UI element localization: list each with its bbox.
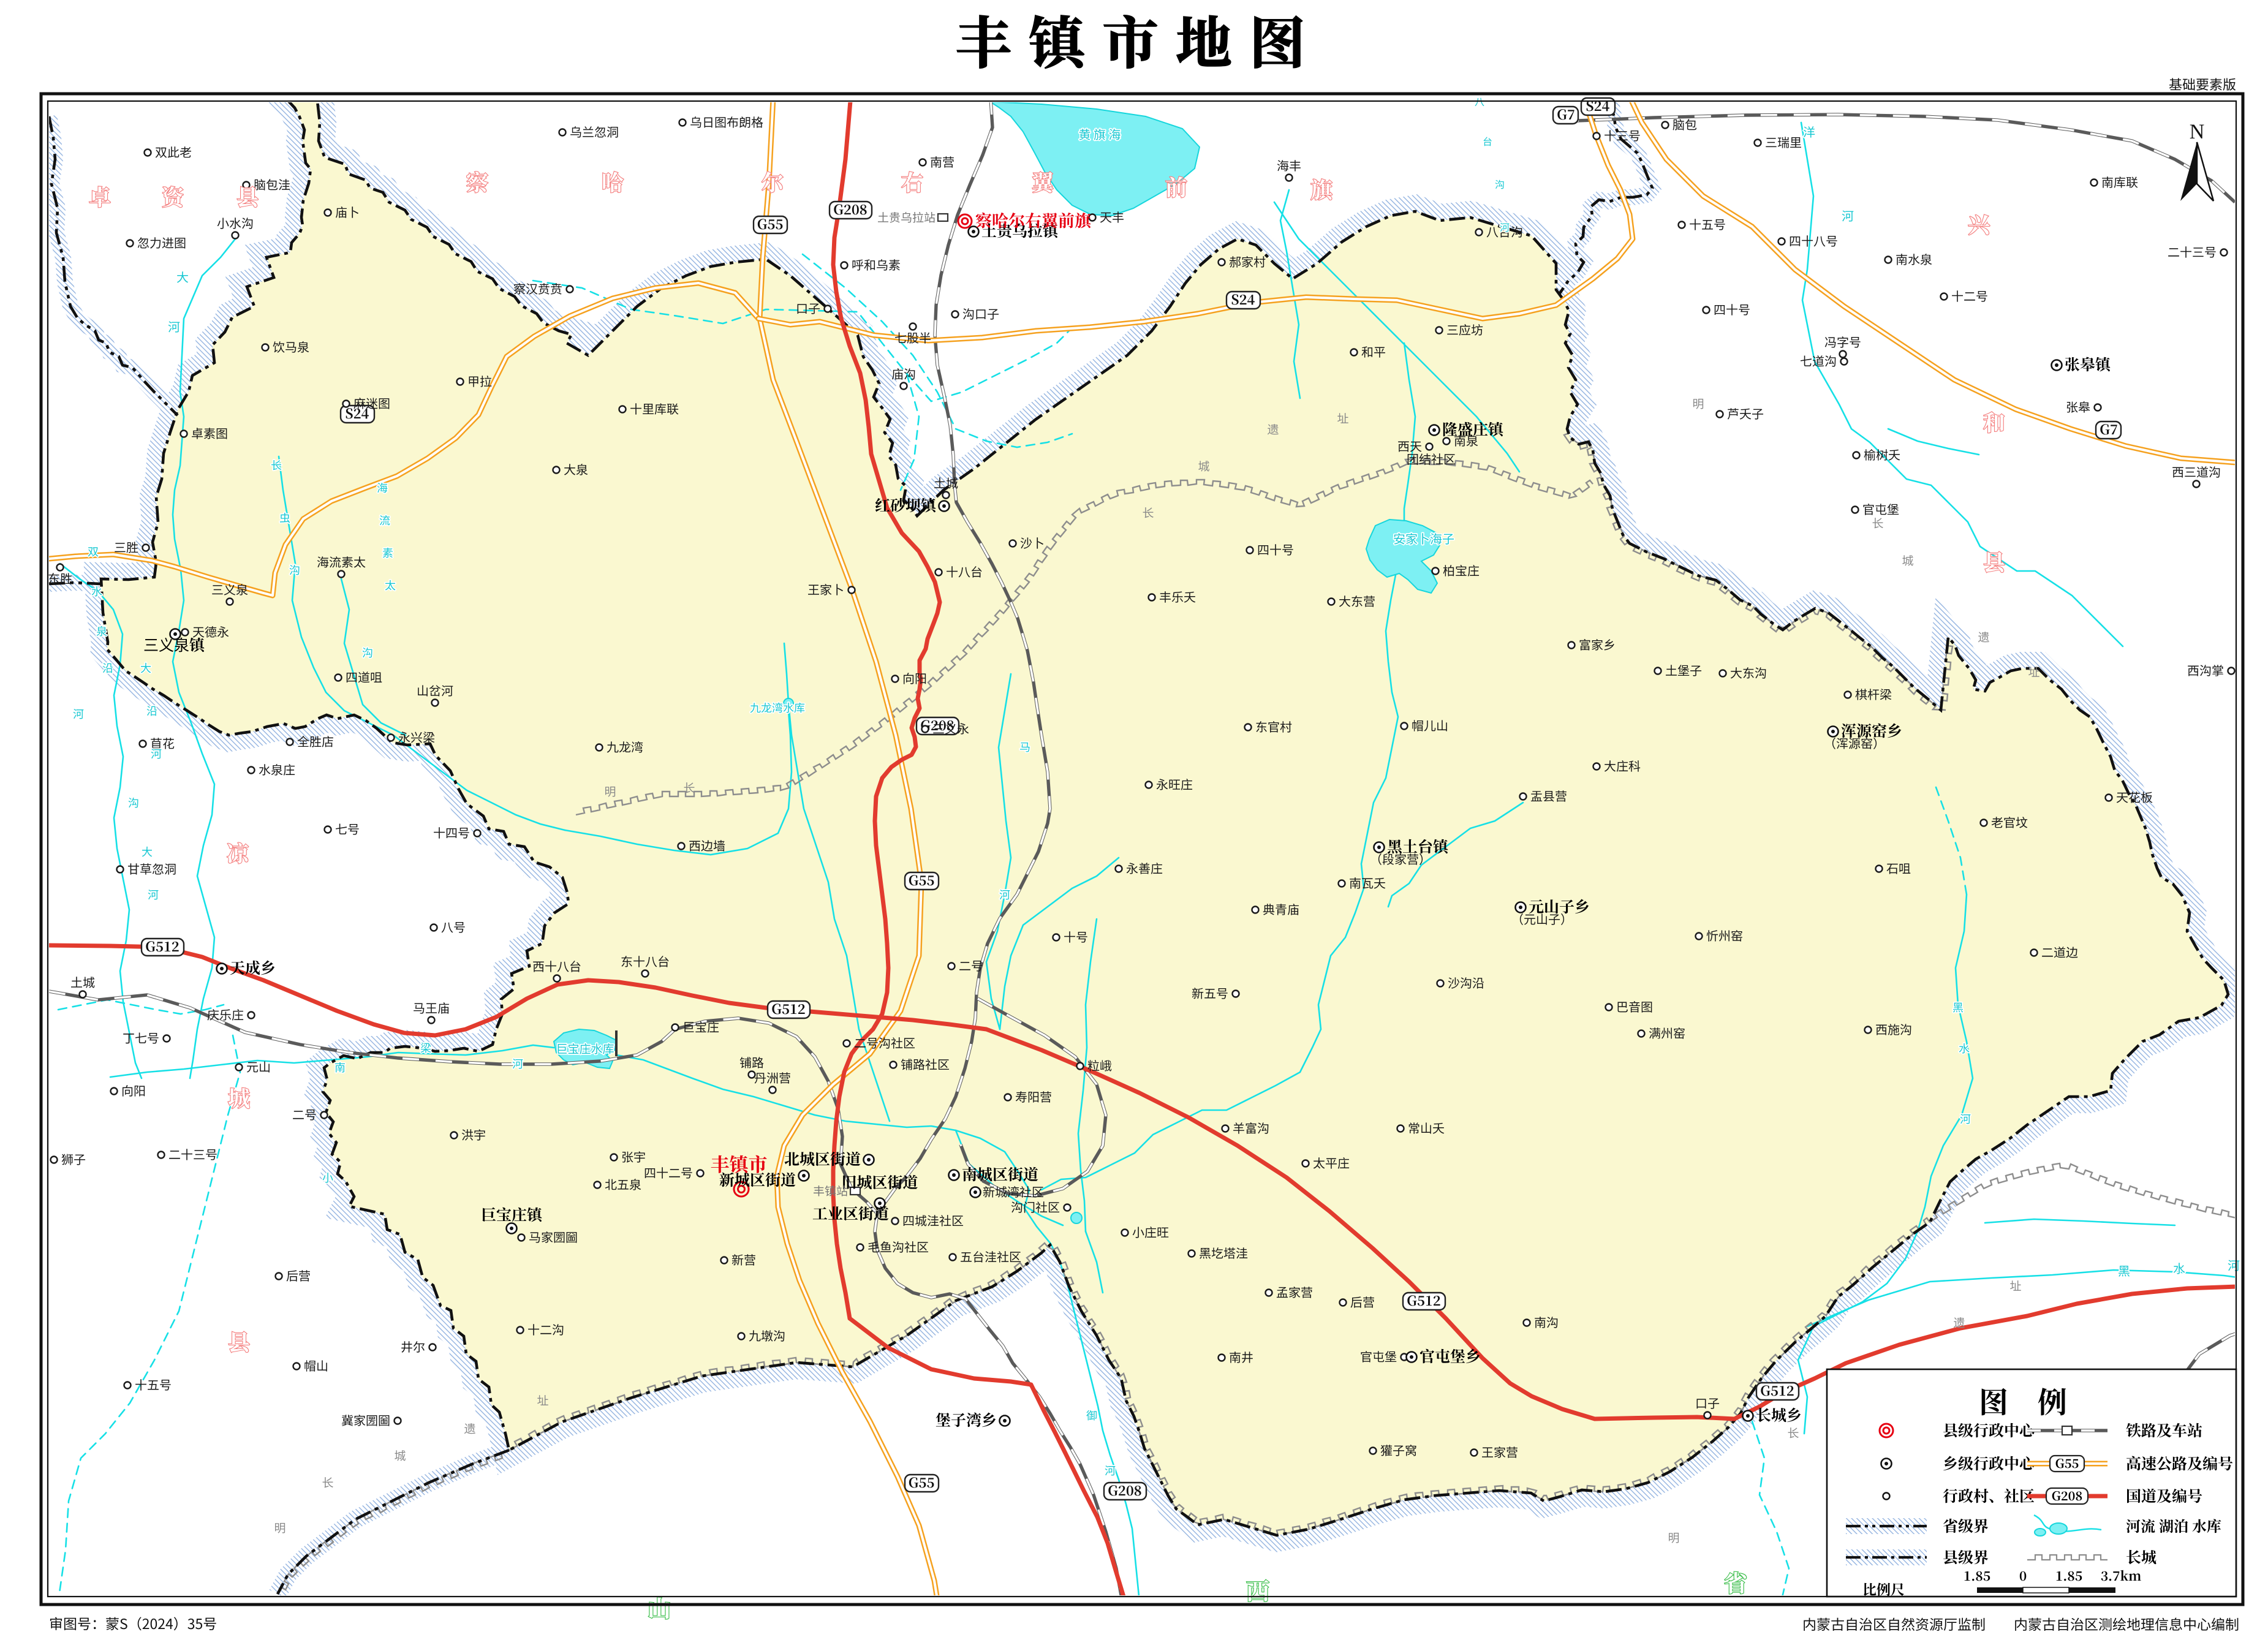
svg-text:全胜店: 全胜店 <box>297 732 334 750</box>
svg-text:二号: 二号 <box>959 956 983 974</box>
svg-text:铁路及车站: 铁路及车站 <box>2126 1419 2202 1441</box>
svg-text:高速公路及编号: 高速公路及编号 <box>2126 1452 2233 1474</box>
svg-text:前: 前 <box>1165 171 1187 202</box>
svg-text:冀家圐圙: 冀家圐圙 <box>341 1411 390 1429</box>
svg-text:卓: 卓 <box>89 181 111 212</box>
svg-text:三义永: 三义永 <box>932 719 969 737</box>
svg-text:山: 山 <box>648 1590 671 1624</box>
svg-text:海流素太: 海流素太 <box>317 553 366 570</box>
svg-text:和平: 和平 <box>1361 342 1386 360</box>
svg-text:流: 流 <box>379 512 390 528</box>
svg-text:S24: S24 <box>1231 290 1255 309</box>
svg-text:明: 明 <box>1668 1529 1679 1546</box>
svg-text:四十八号: 四十八号 <box>1789 232 1838 249</box>
svg-text:3.7km: 3.7km <box>2101 1567 2142 1585</box>
svg-text:G55: G55 <box>757 214 784 233</box>
svg-text:沙沟沿: 沙沟沿 <box>1448 974 1484 991</box>
svg-text:翼: 翼 <box>1032 166 1056 197</box>
svg-text:G55: G55 <box>909 1473 935 1492</box>
svg-text:明: 明 <box>1692 395 1704 412</box>
svg-text:黑: 黑 <box>2118 1261 2130 1279</box>
svg-text:小庄旺: 小庄旺 <box>1132 1223 1169 1241</box>
svg-text:三应坊: 三应坊 <box>1446 320 1483 338</box>
svg-text:十五号: 十五号 <box>135 1375 172 1393</box>
svg-text:忽力进图: 忽力进图 <box>137 233 186 251</box>
svg-text:盂县营: 盂县营 <box>1530 787 1567 804</box>
svg-text:帽儿山: 帽儿山 <box>1412 716 1448 734</box>
svg-text:长: 长 <box>271 457 282 473</box>
svg-text:榆树夭: 榆树夭 <box>1864 445 1900 463</box>
svg-text:遗: 遗 <box>1953 1314 1965 1331</box>
svg-text:十四号: 十四号 <box>433 823 470 841</box>
svg-text:马: 马 <box>1019 739 1030 755</box>
svg-text:巨宝庄: 巨宝庄 <box>682 1018 719 1035</box>
svg-text:大东沟: 大东沟 <box>1730 663 1767 681</box>
svg-text:南水泉: 南水泉 <box>1896 250 1932 268</box>
svg-text:察哈尔右翼前旗: 察哈尔右翼前旗 <box>975 208 1092 232</box>
svg-text:海丰: 海丰 <box>1277 156 1301 174</box>
svg-text:呼和乌素: 呼和乌素 <box>852 255 901 273</box>
svg-text:河: 河 <box>1500 219 1510 234</box>
svg-text:沿: 沿 <box>102 660 113 676</box>
svg-text:大: 大 <box>142 844 153 860</box>
svg-text:四城洼社区: 四城洼社区 <box>902 1211 964 1229</box>
svg-text:九龙湾: 九龙湾 <box>607 738 643 755</box>
svg-text:红砂坝镇: 红砂坝镇 <box>875 494 938 516</box>
svg-text:丰镇市: 丰镇市 <box>711 1149 768 1177</box>
svg-text:永善庄: 永善庄 <box>1126 859 1163 877</box>
svg-text:土贵乌拉站: 土贵乌拉站 <box>877 209 936 225</box>
svg-text:七道沟: 七道沟 <box>1800 352 1837 369</box>
svg-text:河: 河 <box>2228 1256 2240 1274</box>
svg-text:张皋镇: 张皋镇 <box>2065 353 2112 375</box>
svg-text:素: 素 <box>382 545 393 561</box>
svg-text:长城乡: 长城乡 <box>1756 1404 1802 1426</box>
svg-text:二十三号: 二十三号 <box>168 1145 217 1163</box>
svg-text:西十八台: 西十八台 <box>532 957 581 975</box>
svg-text:洋: 洋 <box>1803 123 1815 140</box>
svg-text:1.85: 1.85 <box>2055 1567 2082 1585</box>
svg-text:虫: 虫 <box>279 510 290 526</box>
svg-text:二号: 二号 <box>292 1105 317 1123</box>
svg-text:元山子乡: 元山子乡 <box>1529 895 1590 917</box>
svg-text:向阳: 向阳 <box>121 1081 146 1099</box>
svg-text:河: 河 <box>168 317 180 335</box>
svg-text:二十三号: 二十三号 <box>2168 243 2217 260</box>
svg-text:马家圐圙: 马家圐圙 <box>529 1228 578 1246</box>
svg-text:市: 市 <box>1102 0 1159 80</box>
svg-text:大东营: 大东营 <box>1339 592 1375 610</box>
svg-text:五台洼社区: 五台洼社区 <box>960 1247 1021 1265</box>
svg-text:南沟: 南沟 <box>1534 1313 1559 1331</box>
svg-text:四十号: 四十号 <box>1257 540 1294 558</box>
svg-text:乡级行政中心: 乡级行政中心 <box>1943 1452 2036 1474</box>
svg-text:县级行政中心: 县级行政中心 <box>1943 1419 2036 1441</box>
svg-text:大庄科: 大庄科 <box>1604 757 1641 774</box>
svg-text:县级界: 县级界 <box>1943 1546 1989 1568</box>
svg-text:王家营: 王家营 <box>1481 1443 1518 1461</box>
svg-text:双此老: 双此老 <box>155 143 192 161</box>
svg-text:G512: G512 <box>145 937 180 956</box>
svg-text:土城: 土城 <box>934 474 958 491</box>
svg-text:西三道沟: 西三道沟 <box>2172 463 2221 480</box>
svg-text:河: 河 <box>1960 1111 1971 1127</box>
svg-text:梁: 梁 <box>420 1040 431 1056</box>
svg-text:小水沟: 小水沟 <box>217 214 254 232</box>
svg-text:西施沟: 西施沟 <box>1875 1020 1912 1038</box>
svg-text:遗: 遗 <box>1978 629 1989 645</box>
svg-text:黑圪塔洼: 黑圪塔洼 <box>1199 1244 1248 1261</box>
svg-text:沟门社区: 沟门社区 <box>1011 1198 1060 1215</box>
svg-text:审图号：蒙S（2024）35号: 审图号：蒙S（2024）35号 <box>49 1612 217 1633</box>
svg-text:毛鱼沟社区: 毛鱼沟社区 <box>868 1238 929 1255</box>
svg-text:址: 址 <box>537 1392 548 1408</box>
svg-text:县: 县 <box>1983 546 2006 577</box>
svg-text:老官坟: 老官坟 <box>1991 813 2028 831</box>
svg-text:土堡子: 土堡子 <box>1665 661 1702 679</box>
svg-text:S24: S24 <box>1586 96 1609 115</box>
svg-text:资: 资 <box>162 181 186 212</box>
svg-text:浑源窑乡: 浑源窑乡 <box>1841 719 1902 741</box>
svg-text:右: 右 <box>901 166 923 197</box>
svg-text:马王庙: 马王庙 <box>413 999 450 1016</box>
svg-text:黄 旗 海: 黄 旗 海 <box>1079 125 1121 143</box>
svg-text:郝家村: 郝家村 <box>1229 252 1266 270</box>
svg-text:哈: 哈 <box>602 166 624 197</box>
svg-text:沟口子: 沟口子 <box>962 304 999 322</box>
svg-text:脑包洼: 脑包洼 <box>254 175 290 193</box>
svg-text:四十二号: 四十二号 <box>644 1163 693 1181</box>
svg-text:河: 河 <box>1842 206 1854 224</box>
svg-text:十五号: 十五号 <box>1689 215 1726 233</box>
svg-text:太平庄: 太平庄 <box>1313 1154 1350 1171</box>
svg-text:十八台: 十八台 <box>946 562 983 580</box>
svg-text:忻州窑: 忻州窑 <box>1706 926 1743 944</box>
svg-text:县: 县 <box>228 1326 251 1357</box>
svg-text:巴音图: 巴音图 <box>1616 997 1653 1015</box>
svg-text:G55: G55 <box>909 871 935 890</box>
svg-text:兴: 兴 <box>1968 208 1991 240</box>
svg-text:口子: 口子 <box>796 299 820 317</box>
svg-text:王家卜: 王家卜 <box>807 580 844 598</box>
svg-text:东胜: 东胜 <box>48 569 72 587</box>
svg-text:北五泉: 北五泉 <box>605 1175 641 1193</box>
svg-text:口子: 口子 <box>1695 1394 1720 1412</box>
svg-text:四道咀: 四道咀 <box>346 668 382 686</box>
svg-text:新营: 新营 <box>731 1250 756 1268</box>
svg-text:井尔: 井尔 <box>401 1337 425 1355</box>
svg-text:巨宝庄水库: 巨宝庄水库 <box>556 1040 614 1057</box>
svg-text:遗: 遗 <box>1267 421 1279 437</box>
svg-text:南井: 南井 <box>1229 1348 1253 1366</box>
svg-text:镇: 镇 <box>1029 0 1092 80</box>
svg-text:国道及编号: 国道及编号 <box>2126 1484 2202 1507</box>
svg-text:址: 址 <box>2009 1277 2021 1294</box>
svg-text:沟: 沟 <box>362 645 373 660</box>
svg-text:河: 河 <box>151 746 162 762</box>
svg-text:庙卜: 庙卜 <box>335 203 360 221</box>
svg-text:十号: 十号 <box>1064 928 1088 945</box>
svg-text:元山: 元山 <box>246 1057 271 1075</box>
svg-text:沟: 沟 <box>128 795 139 811</box>
svg-text:址: 址 <box>2028 663 2039 680</box>
svg-text:帽山: 帽山 <box>304 1356 328 1374</box>
svg-text:堡子湾乡: 堡子湾乡 <box>936 1408 997 1431</box>
svg-text:南库联: 南库联 <box>2101 173 2138 191</box>
svg-text:乌兰忽洞: 乌兰忽洞 <box>570 123 619 140</box>
svg-text:三瑞里: 三瑞里 <box>1765 133 1802 151</box>
svg-text:团结社区: 团结社区 <box>1407 450 1456 467</box>
svg-text:后营: 后营 <box>286 1266 311 1284</box>
svg-text:山岔河: 山岔河 <box>417 681 453 699</box>
svg-text:大: 大 <box>176 268 189 285</box>
svg-text:芦夭子: 芦夭子 <box>1727 404 1764 422</box>
svg-text:G512: G512 <box>1407 1291 1441 1310</box>
svg-text:沟: 沟 <box>1495 176 1505 191</box>
svg-text:遗: 遗 <box>464 1420 475 1437</box>
svg-text:察汉贲贲: 察汉贲贲 <box>513 279 562 297</box>
svg-text:旧城区街道: 旧城区街道 <box>841 1171 918 1193</box>
svg-text:洪宇: 洪宇 <box>461 1125 486 1143</box>
svg-text:城: 城 <box>228 1082 250 1113</box>
svg-text:双: 双 <box>88 543 99 559</box>
svg-text:大泉: 大泉 <box>564 460 588 478</box>
svg-text:孟家营: 孟家营 <box>1276 1283 1313 1301</box>
svg-text:内蒙古自治区自然资源厅监制 内蒙古自治区测绘地理信息中心编: 内蒙古自治区自然资源厅监制 内蒙古自治区测绘地理信息中心编制 <box>1802 1613 2239 1634</box>
svg-text:柏宝庄: 柏宝庄 <box>1443 561 1480 579</box>
svg-text:G208: G208 <box>2052 1486 2082 1504</box>
svg-text:沙卜: 沙卜 <box>1020 534 1045 551</box>
svg-text:省: 省 <box>1724 1565 1748 1598</box>
svg-text:甲拉: 甲拉 <box>467 372 492 390</box>
svg-text:天丰: 天丰 <box>1100 208 1124 225</box>
svg-text:官屯堡: 官屯堡 <box>1360 1347 1397 1365</box>
svg-text:十三号: 十三号 <box>1604 126 1641 144</box>
svg-text:南营: 南营 <box>930 153 954 170</box>
svg-text:土城: 土城 <box>70 973 95 991</box>
svg-text:张皋: 张皋 <box>2066 398 2090 415</box>
svg-text:棋杆梁: 棋杆梁 <box>1855 685 1892 703</box>
svg-text:东十八台: 东十八台 <box>621 952 670 970</box>
svg-text:隆盛庄镇: 隆盛庄镇 <box>1442 418 1505 440</box>
svg-text:沿: 沿 <box>146 703 157 719</box>
svg-text:八号: 八号 <box>441 918 466 936</box>
svg-text:永兴梁: 永兴梁 <box>398 728 435 746</box>
svg-text:南: 南 <box>335 1059 346 1075</box>
svg-text:丰乐夭: 丰乐夭 <box>1159 588 1196 605</box>
svg-text:N: N <box>2190 115 2205 145</box>
svg-text:卓素图: 卓素图 <box>191 424 228 442</box>
svg-text:冯字号: 冯字号 <box>1824 333 1861 350</box>
svg-text:尔: 尔 <box>762 166 785 197</box>
svg-text:三胜: 三胜 <box>114 538 138 556</box>
svg-text:河: 河 <box>999 887 1010 902</box>
svg-text:张宇: 张宇 <box>621 1147 646 1165</box>
svg-text:河: 河 <box>1105 1462 1116 1478</box>
svg-text:铺路社区: 铺路社区 <box>901 1055 950 1073</box>
svg-text:三义泉: 三义泉 <box>211 580 248 598</box>
svg-text:永旺庄: 永旺庄 <box>1156 775 1193 793</box>
svg-text:三义泉镇: 三义泉镇 <box>143 633 206 656</box>
svg-text:水: 水 <box>2173 1259 2185 1277</box>
svg-text:水泉庄: 水泉庄 <box>259 760 295 778</box>
svg-text:城: 城 <box>1902 552 1913 569</box>
svg-text:G208: G208 <box>1108 1481 1142 1500</box>
svg-text:满州窑: 满州窑 <box>1649 1024 1685 1042</box>
svg-text:图 例: 图 例 <box>1979 1379 2067 1421</box>
svg-text:天花板: 天花板 <box>2116 788 2153 806</box>
svg-text:七股半: 七股半 <box>894 328 931 346</box>
svg-text:1.85: 1.85 <box>1964 1567 1990 1585</box>
svg-text:水: 水 <box>91 583 102 599</box>
svg-text:狮子: 狮子 <box>61 1150 86 1168</box>
svg-text:御: 御 <box>1086 1407 1097 1423</box>
svg-text:富家乡: 富家乡 <box>1579 635 1616 653</box>
svg-text:明: 明 <box>604 783 616 800</box>
svg-text:官屯堡乡: 官屯堡乡 <box>1419 1345 1481 1367</box>
svg-text:九龙湾水库: 九龙湾水库 <box>750 700 805 716</box>
svg-text:G512: G512 <box>1760 1381 1794 1400</box>
svg-text:粒峨: 粒峨 <box>1087 1056 1112 1074</box>
svg-text:行政村、社区: 行政村、社区 <box>1943 1484 2035 1507</box>
svg-text:察: 察 <box>466 166 488 197</box>
svg-text:城: 城 <box>394 1447 406 1464</box>
svg-text:獾子窝: 獾子窝 <box>1380 1441 1417 1459</box>
svg-text:石咀: 石咀 <box>1886 859 1911 877</box>
svg-text:新五号: 新五号 <box>1192 984 1228 1002</box>
svg-text:G55: G55 <box>2055 1454 2079 1472</box>
svg-text:向阳: 向阳 <box>902 669 927 687</box>
svg-text:四十号: 四十号 <box>1714 300 1750 318</box>
svg-text:旗: 旗 <box>1310 173 1334 205</box>
svg-text:南城区街道: 南城区街道 <box>962 1163 1038 1185</box>
svg-text:城: 城 <box>1198 458 1209 474</box>
svg-text:大: 大 <box>140 660 151 676</box>
svg-text:丰: 丰 <box>955 0 1011 80</box>
svg-text:G7: G7 <box>2100 420 2118 439</box>
svg-text:十二沟: 十二沟 <box>527 1320 564 1338</box>
svg-text:河: 河 <box>148 887 159 902</box>
svg-text:长: 长 <box>1142 504 1154 521</box>
svg-text:十里库联: 十里库联 <box>630 399 679 417</box>
svg-text:丁七号: 丁七号 <box>123 1029 159 1046</box>
svg-text:G208: G208 <box>833 200 868 219</box>
svg-text:县: 县 <box>236 181 259 212</box>
svg-text:甘草忽洞: 甘草忽洞 <box>127 860 176 877</box>
svg-text:址: 址 <box>1337 410 1348 426</box>
svg-text:G7: G7 <box>1557 105 1575 124</box>
svg-text:羊富沟: 羊富沟 <box>1233 1119 1269 1136</box>
svg-text:庙沟: 庙沟 <box>891 365 916 382</box>
svg-text:乌日图布朗格: 乌日图布朗格 <box>690 113 763 130</box>
svg-text:二号沟社区: 二号沟社区 <box>854 1034 915 1051</box>
svg-text:河: 河 <box>512 1056 523 1072</box>
svg-text:饮马泉: 饮马泉 <box>273 338 309 355</box>
svg-text:东官村: 东官村 <box>1255 717 1292 735</box>
svg-text:典青庙: 典青庙 <box>1263 900 1299 918</box>
svg-text:长: 长 <box>322 1474 333 1491</box>
svg-text:台: 台 <box>1483 134 1492 148</box>
svg-text:西沟掌: 西沟掌 <box>2187 661 2224 679</box>
svg-text:脑包: 脑包 <box>1673 115 1697 133</box>
svg-text:巨宝庄镇: 巨宝庄镇 <box>481 1203 544 1225</box>
svg-text:黑: 黑 <box>1952 999 1964 1015</box>
svg-text:南瓦夭: 南瓦夭 <box>1349 874 1386 891</box>
svg-text:河流 湖泊 水库: 河流 湖泊 水库 <box>2126 1514 2221 1536</box>
svg-text:小: 小 <box>322 1170 333 1185</box>
svg-text:二道边: 二道边 <box>2041 943 2078 961</box>
svg-text:和: 和 <box>1983 406 2005 437</box>
svg-text:省级界: 省级界 <box>1943 1514 1989 1537</box>
svg-text:0: 0 <box>2019 1567 2027 1585</box>
svg-text:河: 河 <box>73 706 84 722</box>
svg-text:天成乡: 天成乡 <box>230 956 276 978</box>
svg-text:七号: 七号 <box>335 820 360 837</box>
svg-text:常山夭: 常山夭 <box>1408 1119 1445 1136</box>
svg-text:地: 地 <box>1176 0 1232 80</box>
svg-text:图: 图 <box>1249 0 1306 80</box>
svg-text:基础要素版: 基础要素版 <box>2169 74 2236 94</box>
svg-text:工业区街道: 工业区街道 <box>812 1202 889 1224</box>
svg-text:麻迷图: 麻迷图 <box>353 394 390 412</box>
svg-text:明: 明 <box>274 1519 285 1536</box>
svg-text:太: 太 <box>385 577 396 593</box>
svg-text:水: 水 <box>1959 1040 1970 1056</box>
svg-text:西: 西 <box>1246 1573 1269 1606</box>
svg-text:长城: 长城 <box>2126 1546 2156 1568</box>
svg-text:长: 长 <box>1787 1424 1799 1441</box>
svg-text:庆乐庄: 庆乐庄 <box>207 1005 244 1023</box>
svg-text:长: 长 <box>683 779 695 796</box>
svg-text:北城区街道: 北城区街道 <box>784 1147 861 1170</box>
svg-text:丹洲营: 丹洲营 <box>754 1068 791 1086</box>
svg-text:十二号: 十二号 <box>1951 287 1988 304</box>
svg-text:黑土台镇: 黑土台镇 <box>1387 835 1450 857</box>
svg-text:沟: 沟 <box>289 562 300 578</box>
svg-text:G512: G512 <box>771 999 806 1018</box>
svg-text:寿阳营: 寿阳营 <box>1015 1087 1052 1105</box>
svg-text:长: 长 <box>1872 515 1883 531</box>
svg-text:安家卜海子: 安家卜海子 <box>1393 529 1454 547</box>
svg-text:凉: 凉 <box>227 837 250 868</box>
svg-text:后营: 后营 <box>1350 1293 1375 1310</box>
svg-text:西边墙: 西边墙 <box>689 836 725 854</box>
svg-text:海: 海 <box>377 480 388 496</box>
svg-text:泉: 泉 <box>96 623 107 639</box>
svg-text:九墩沟: 九墩沟 <box>749 1326 785 1344</box>
svg-text:丰镇站: 丰镇站 <box>813 1182 848 1199</box>
